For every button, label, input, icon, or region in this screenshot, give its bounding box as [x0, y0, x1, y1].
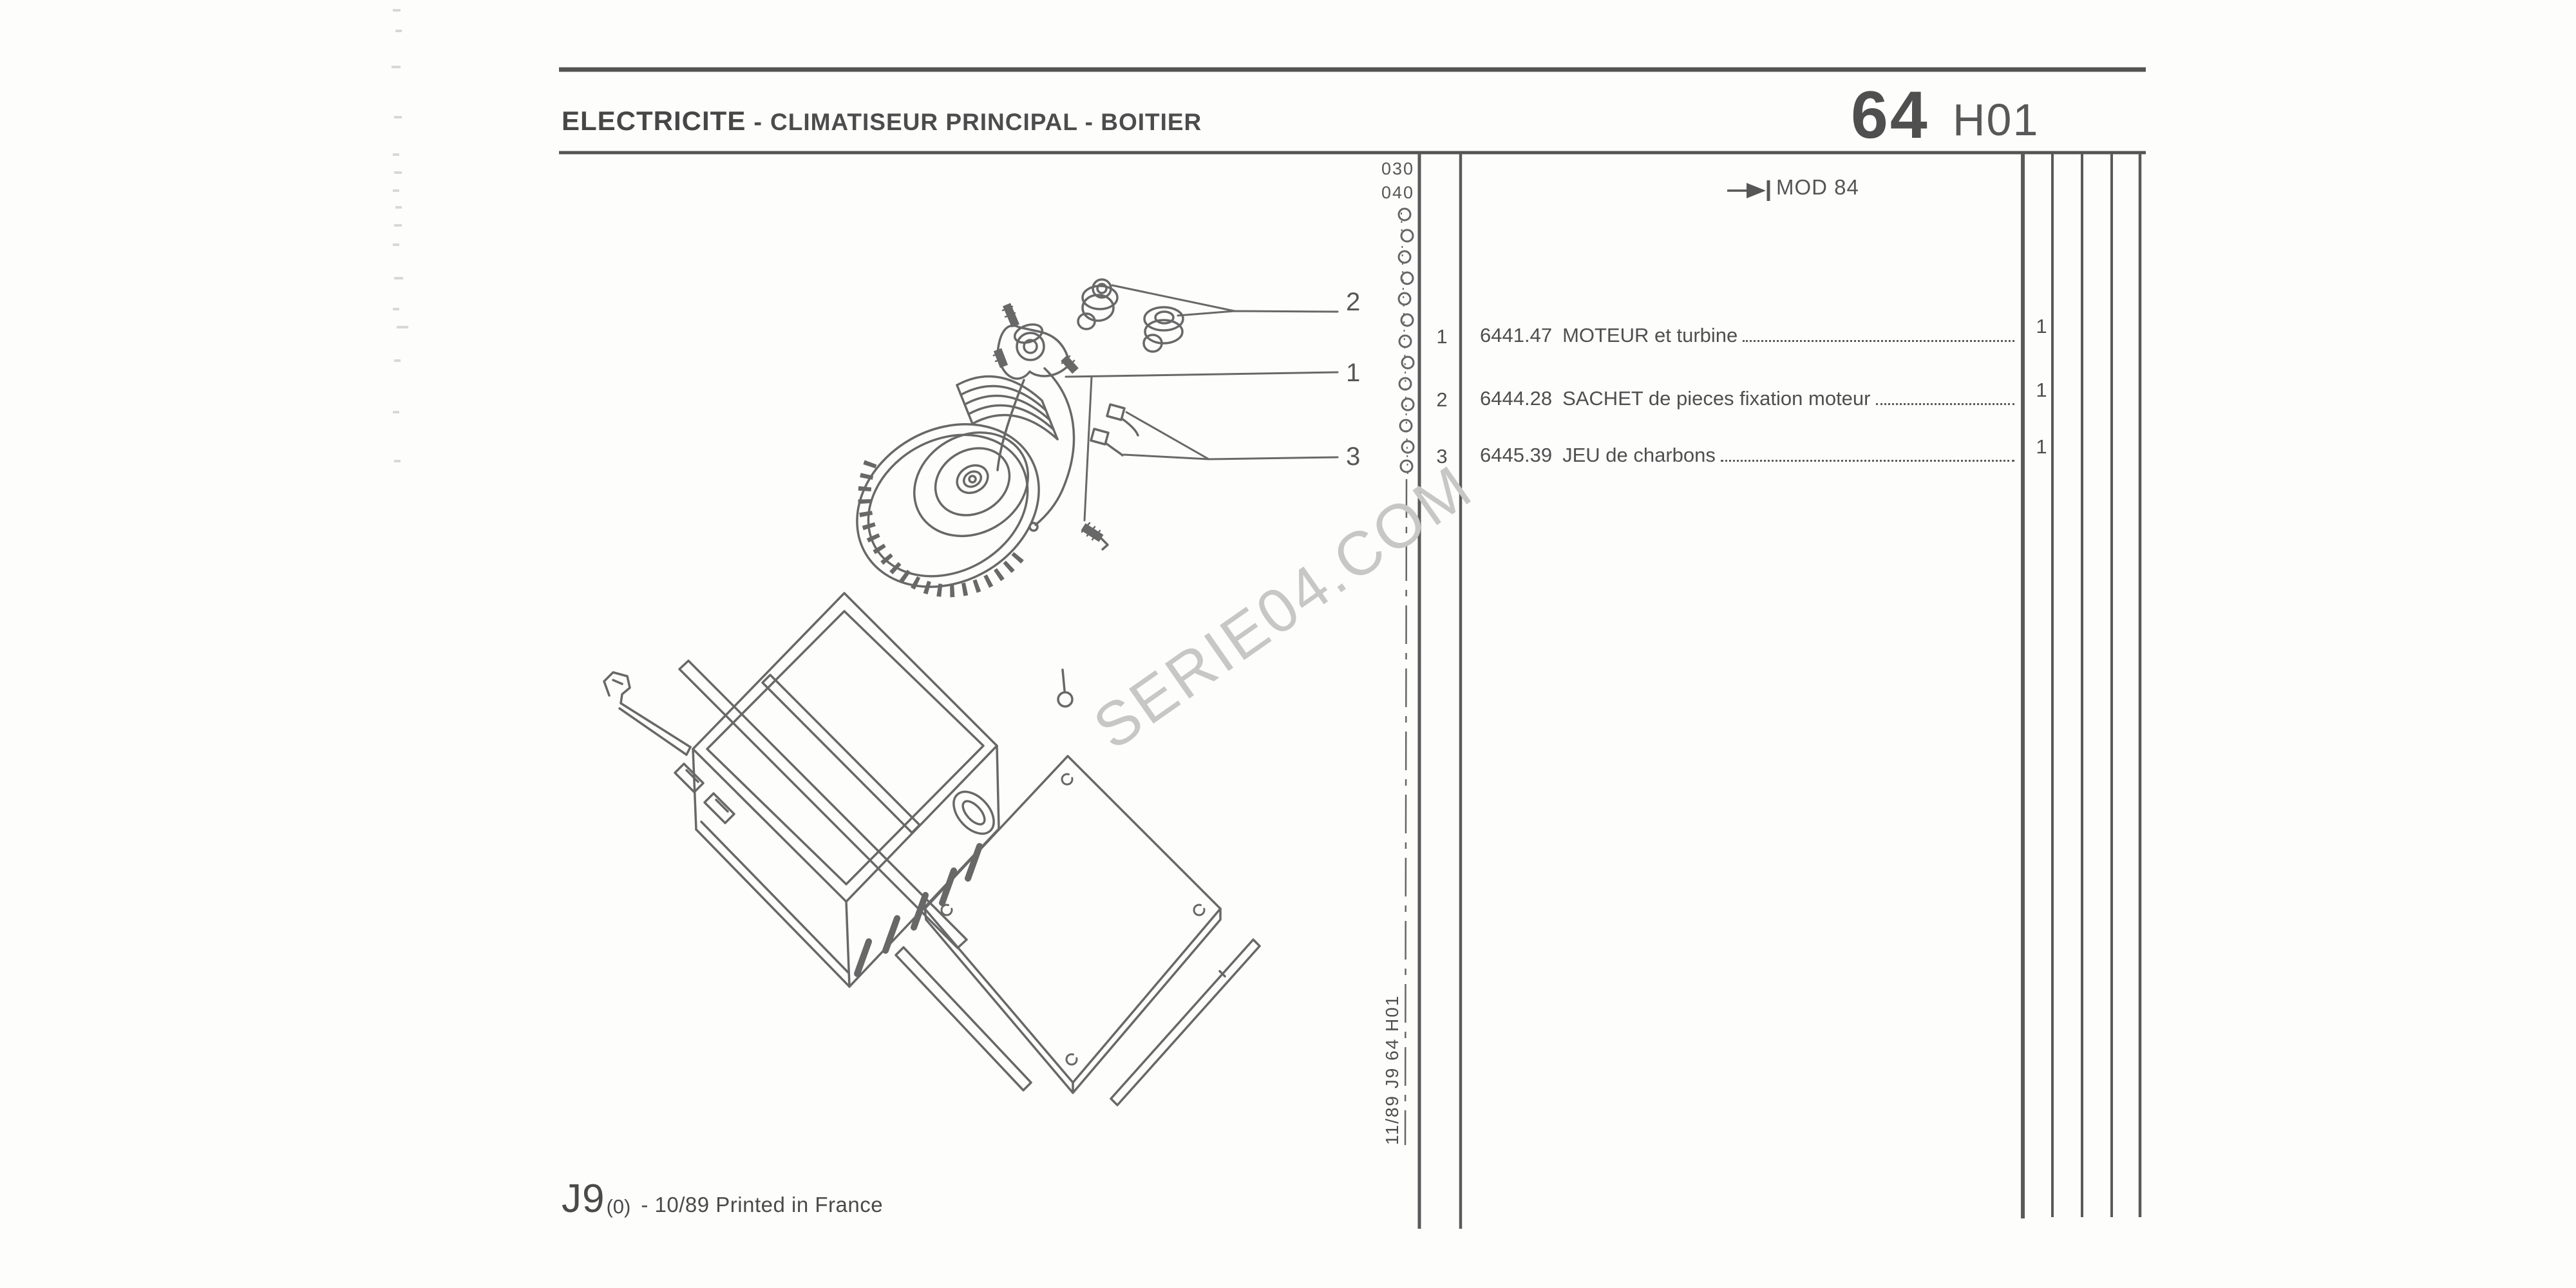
callout-3: 3	[1346, 442, 1360, 471]
scan-edge-marks	[392, 10, 408, 461]
part-qty: 1	[2027, 315, 2056, 338]
margin-code-040: 040	[1369, 181, 1414, 205]
part-label: JEU de charbons	[1562, 444, 1716, 467]
callout-2: 2	[1346, 288, 1360, 316]
dot-leader	[1721, 460, 2014, 462]
callout-1: 1	[1346, 359, 1360, 387]
part-label: SACHET de pieces fixation moteur	[1562, 387, 1870, 410]
footer-model: J9	[562, 1176, 605, 1222]
table-row: 6444.28 SACHET de pieces fixation moteur	[1480, 387, 2016, 410]
dot-leader	[1876, 403, 2015, 405]
page-title: ELECTRICITE-CLIMATISEUR PRINCIPAL - BOIT…	[562, 106, 1202, 137]
part-ref: 6445.39	[1480, 444, 1552, 467]
part-label: MOTEUR et turbine	[1562, 324, 1738, 347]
mod-arrow-icon	[1727, 180, 1768, 201]
page-code: H01	[1953, 94, 2039, 146]
side-code: 11/89 J9 64 H01	[1382, 997, 1403, 1145]
catalog-page: 2 1 3 ELECTRICITE-CLIMATISEUR PRINCIPAL …	[0, 0, 2576, 1288]
subsection-title: CLIMATISEUR PRINCIPAL - BOITIER	[770, 109, 1202, 135]
table-row: 6445.39 JEU de charbons	[1480, 444, 2016, 467]
table-row: 6441.47 MOTEUR et turbine	[1480, 324, 2016, 347]
callout-leaders	[1066, 285, 1338, 520]
column-rules	[1419, 153, 2140, 1229]
motor-turbine-drawing	[828, 305, 1108, 619]
footer-variant: (0)	[606, 1195, 630, 1218]
margin-codes: 030 040	[1369, 157, 1414, 205]
part-ref: 6444.28	[1480, 387, 1552, 410]
seal-strips-drawing	[896, 940, 1260, 1105]
mod-note: MOD 84	[1776, 175, 1859, 200]
rubber-mounts-drawing	[1078, 279, 1183, 352]
item-number: 2	[1427, 388, 1457, 412]
technical-drawing	[604, 279, 1338, 1105]
part-qty: 1	[2027, 435, 2056, 459]
fold-dash-line	[1405, 479, 1406, 1145]
page-number: 64	[1851, 77, 1929, 154]
part-qty: 1	[2027, 379, 2056, 402]
item-number: 1	[1427, 325, 1457, 348]
callout-labels: 2 1 3	[1346, 288, 1360, 471]
part-ref: 6441.47	[1480, 324, 1552, 347]
section-title: ELECTRICITE	[562, 106, 746, 136]
title-separator: -	[753, 109, 762, 136]
dot-leader	[1743, 340, 2014, 342]
footer-print-note: - 10/89 Printed in France	[641, 1193, 883, 1217]
brush-connectors-drawing	[1091, 404, 1138, 455]
footer: J9 (0) - 10/89 Printed in France	[562, 1176, 883, 1222]
margin-code-030: 030	[1369, 157, 1414, 181]
